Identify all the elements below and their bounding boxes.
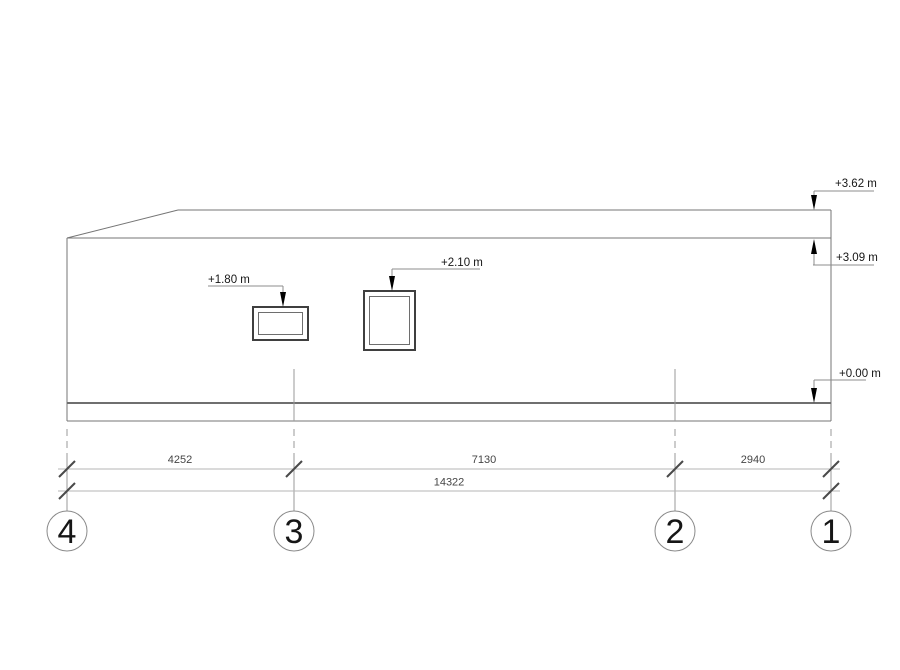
grid-axis-lines bbox=[67, 369, 831, 511]
window-1 bbox=[253, 307, 308, 340]
leader-ground bbox=[811, 380, 866, 403]
building-outline bbox=[67, 210, 831, 421]
dim-label-3-to-2: 7130 bbox=[472, 454, 496, 466]
leader-window-1 bbox=[208, 286, 286, 307]
leader-window-2 bbox=[389, 269, 480, 291]
elevation-drawing: +1.80 m +2.10 m +3.62 m +3.09 m +0.00 m bbox=[0, 0, 900, 670]
down-arrow-icon bbox=[811, 388, 817, 403]
roof-slope-line bbox=[67, 210, 178, 238]
elevation-label-roof-top: +3.62 m bbox=[835, 178, 877, 190]
dim-label-total: 14322 bbox=[434, 477, 465, 489]
dim-label-2-to-1: 2940 bbox=[741, 454, 765, 466]
grid-bubbles: 4 3 2 1 bbox=[47, 511, 851, 551]
grid-bubble-1: 1 bbox=[811, 511, 851, 551]
grid-bubble-4-label: 4 bbox=[58, 513, 77, 551]
window-1-outer-frame bbox=[253, 307, 308, 340]
leader-roof-top bbox=[811, 191, 874, 210]
elevation-label-eave: +3.09 m bbox=[836, 252, 878, 264]
grid-bubble-2: 2 bbox=[655, 511, 695, 551]
elevation-label-ground: +0.00 m bbox=[839, 368, 881, 380]
up-arrow-icon bbox=[811, 239, 817, 254]
elevation-drawing-canvas: +1.80 m +2.10 m +3.62 m +3.09 m +0.00 m bbox=[0, 0, 900, 670]
down-arrow-icon bbox=[389, 276, 395, 291]
grid-bubble-1-label: 1 bbox=[822, 513, 841, 551]
down-arrow-icon bbox=[811, 195, 817, 210]
dim-label-4-to-3: 4252 bbox=[168, 454, 192, 466]
grid-bubble-4: 4 bbox=[47, 511, 87, 551]
elevation-label-window-2: +2.10 m bbox=[441, 257, 483, 269]
elevation-leaders bbox=[208, 191, 874, 403]
window-2-outer-frame bbox=[364, 291, 415, 350]
elevation-label-window-1: +1.80 m bbox=[208, 274, 250, 286]
window-2 bbox=[364, 291, 415, 350]
down-arrow-icon bbox=[280, 292, 286, 307]
grid-bubble-2-label: 2 bbox=[666, 513, 685, 551]
grid-bubble-3: 3 bbox=[274, 511, 314, 551]
grid-bubble-3-label: 3 bbox=[285, 513, 304, 551]
